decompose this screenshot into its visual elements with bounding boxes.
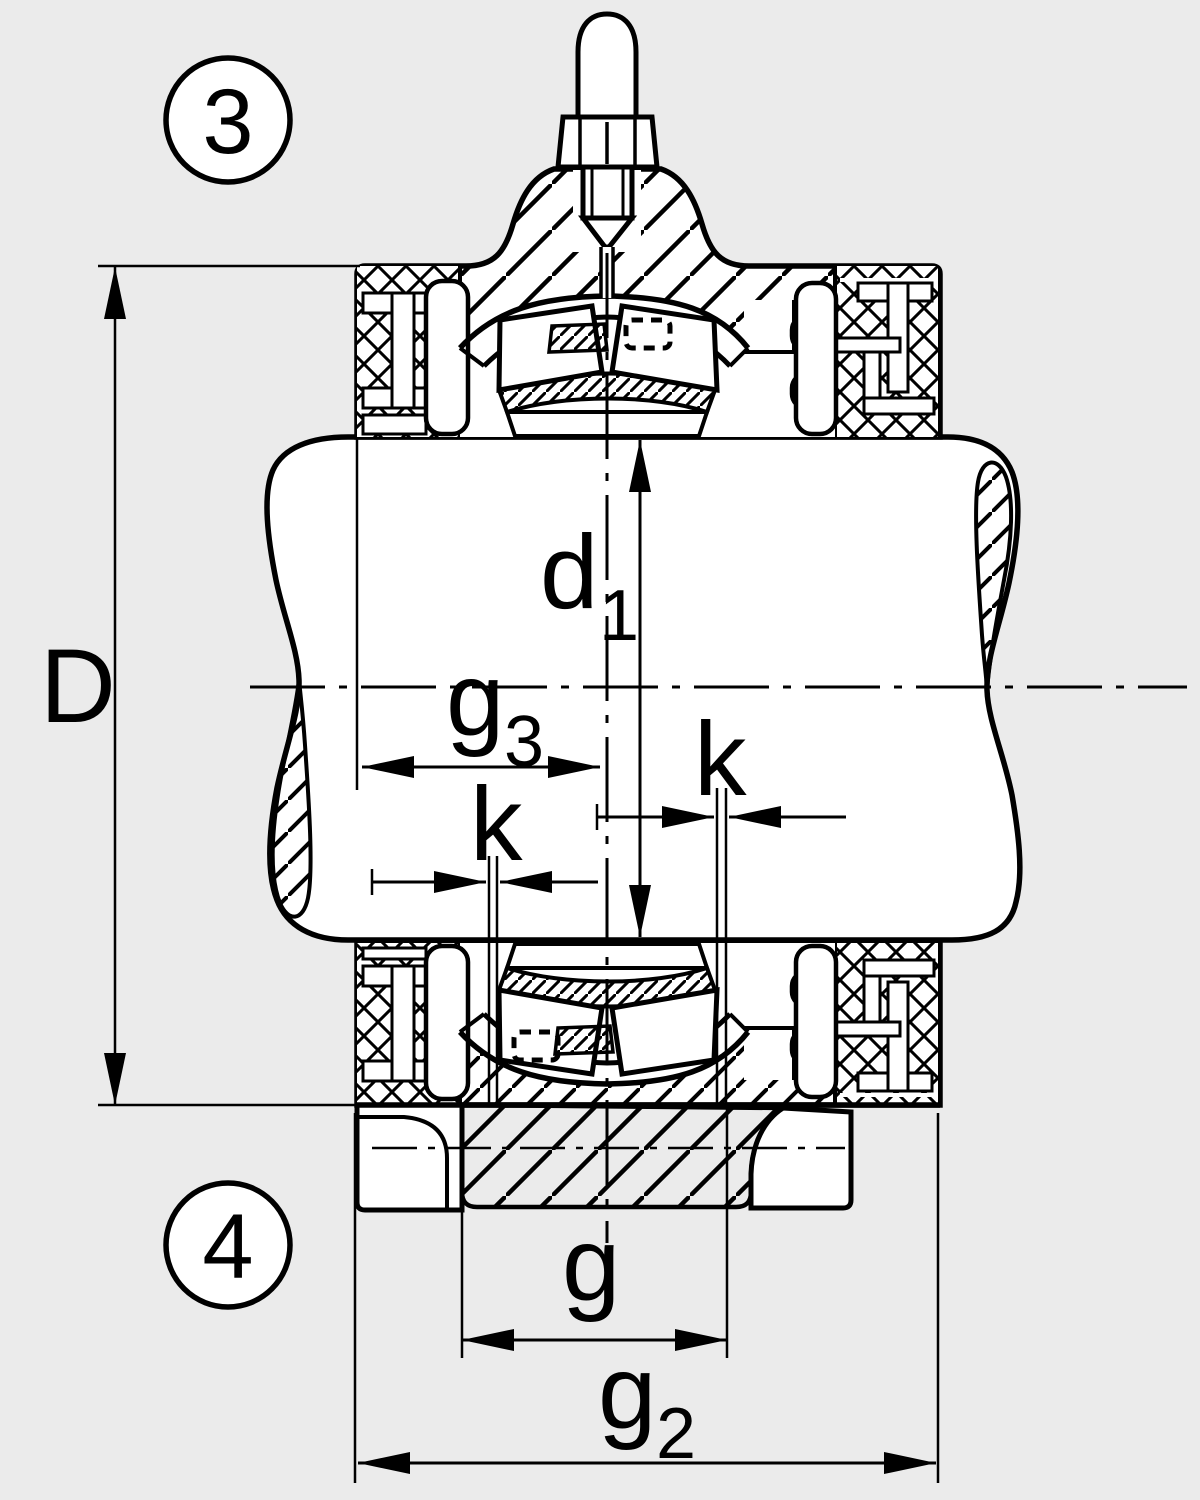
fitting-pin (578, 14, 636, 117)
lower-housing (357, 943, 940, 1105)
inner-ring-rib-lower (555, 1026, 613, 1054)
engineering-drawing: D d 1 g 3 k (0, 0, 1200, 1500)
label-g2-sub: 2 (656, 1394, 696, 1474)
label-d1-base: d (540, 514, 598, 631)
drawing-canvas: D d 1 g 3 k (0, 0, 1200, 1500)
label-k-right: k (694, 701, 747, 818)
seal-bore-upper-left (426, 281, 468, 434)
inner-ring-rib-upper (549, 324, 607, 352)
housing-base (357, 1105, 940, 1210)
label-k-left: k (470, 766, 523, 883)
seal-block-lower-right (835, 943, 938, 1105)
balloon-4-number: 4 (202, 1196, 253, 1298)
seal-bore-lower-left (426, 946, 468, 1099)
label-g3-base: g (446, 641, 504, 758)
seal-bore-lower-right (796, 946, 836, 1097)
balloon-3-number: 3 (202, 71, 253, 173)
seal-bore-upper-right (796, 283, 836, 434)
balloon-4: 4 (166, 1183, 290, 1307)
label-d1-sub: 1 (599, 576, 639, 656)
foot-right (751, 1108, 851, 1208)
seal-block-upper-right (835, 266, 938, 437)
base-pedestal (462, 1105, 783, 1207)
label-g: g (562, 1206, 620, 1323)
label-g2-base: g (598, 1334, 656, 1451)
balloon-3: 3 (166, 58, 290, 182)
label-D: D (40, 628, 116, 745)
